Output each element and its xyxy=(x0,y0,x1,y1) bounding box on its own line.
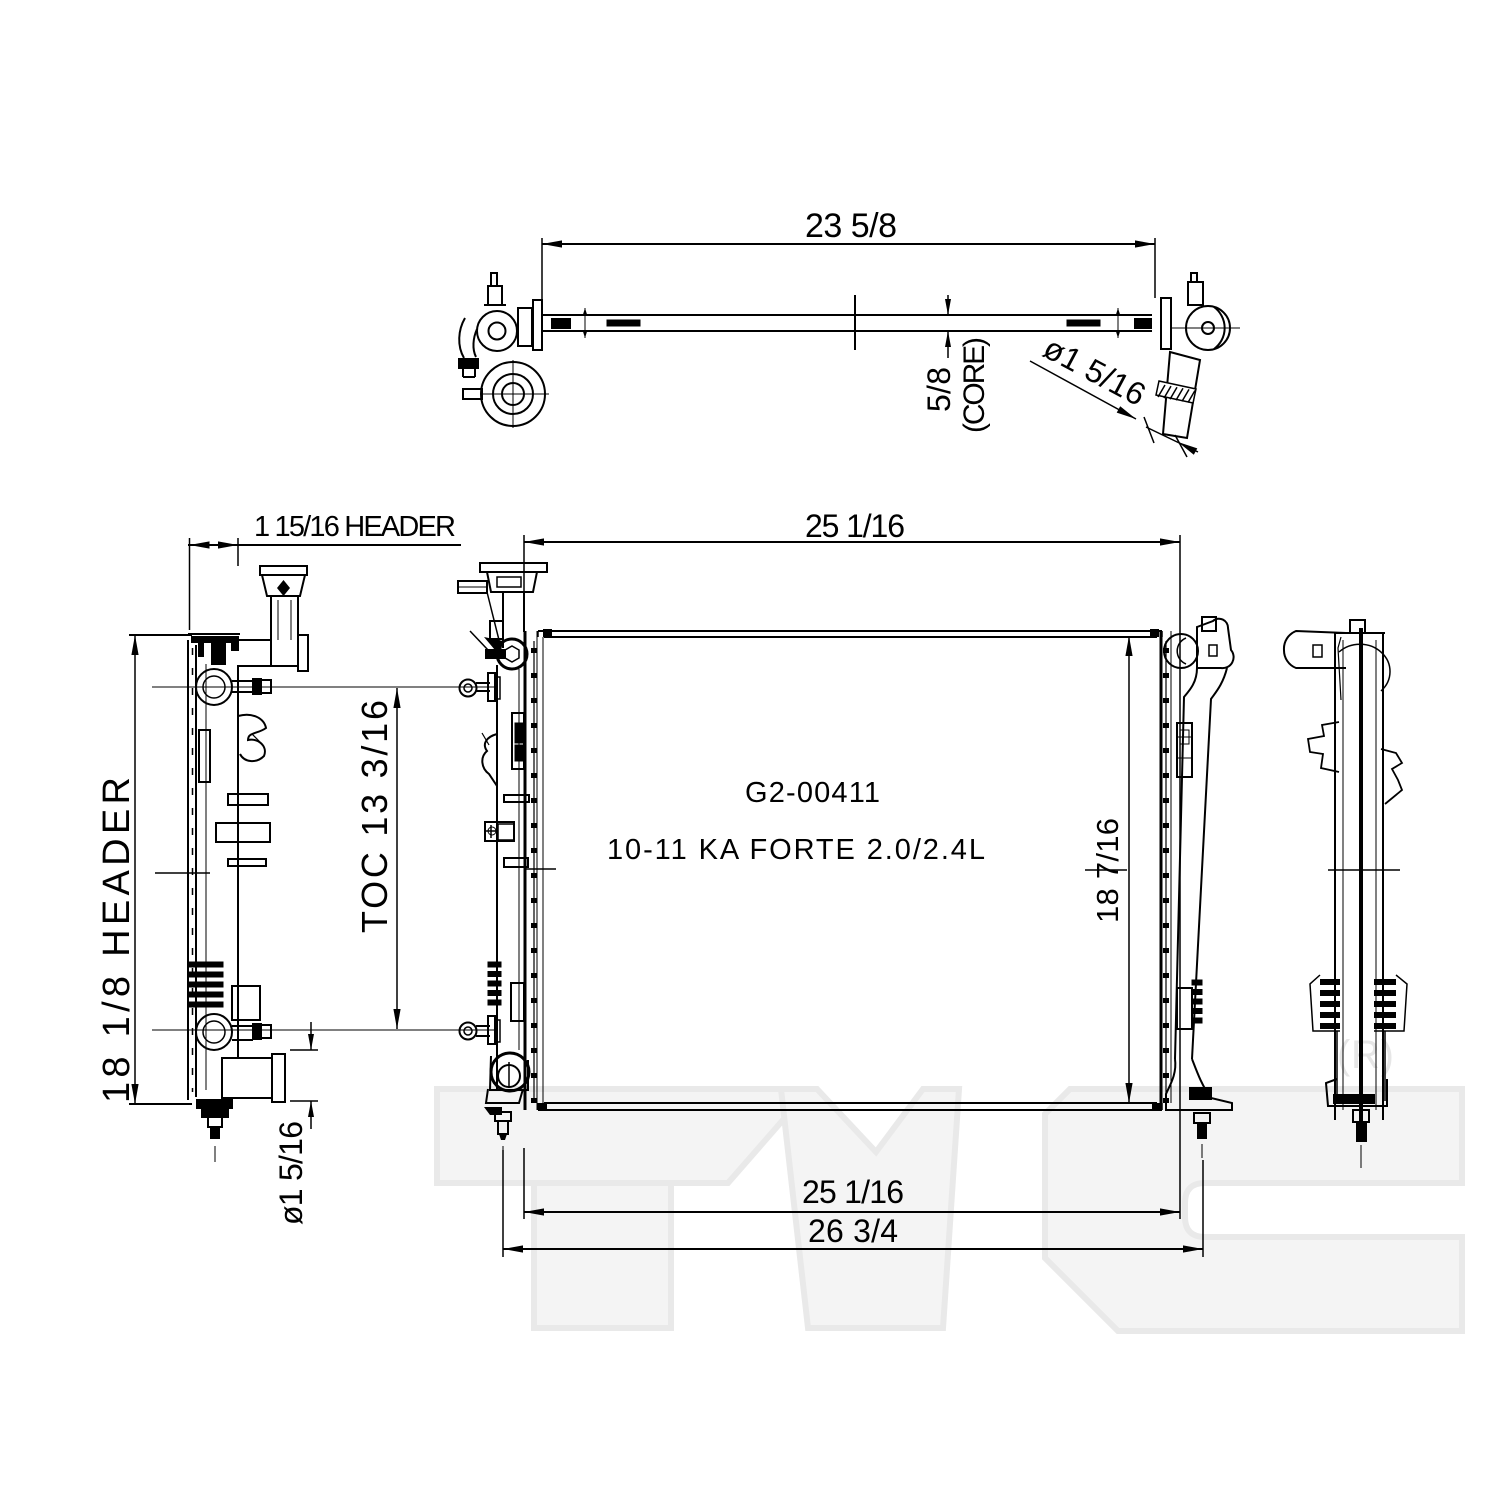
svg-text:5/8: 5/8 xyxy=(921,367,957,412)
svg-text:(CORE): (CORE) xyxy=(958,337,991,433)
svg-text:10-11 KA FORTE 2.0/2.4L: 10-11 KA FORTE 2.0/2.4L xyxy=(607,834,985,866)
svg-text:23 5/8: 23 5/8 xyxy=(805,207,897,245)
svg-text:18 7/16: 18 7/16 xyxy=(1090,818,1125,923)
svg-text:25 1/16: 25 1/16 xyxy=(805,508,905,544)
svg-text:G2-00411: G2-00411 xyxy=(745,777,880,809)
svg-text:26 3/4: 26 3/4 xyxy=(808,1213,898,1249)
svg-text:1 15/16 HEADER: 1 15/16 HEADER xyxy=(254,511,456,543)
svg-text:ø1 5/16: ø1 5/16 xyxy=(273,1121,309,1225)
svg-text:25 1/16: 25 1/16 xyxy=(802,1174,904,1210)
